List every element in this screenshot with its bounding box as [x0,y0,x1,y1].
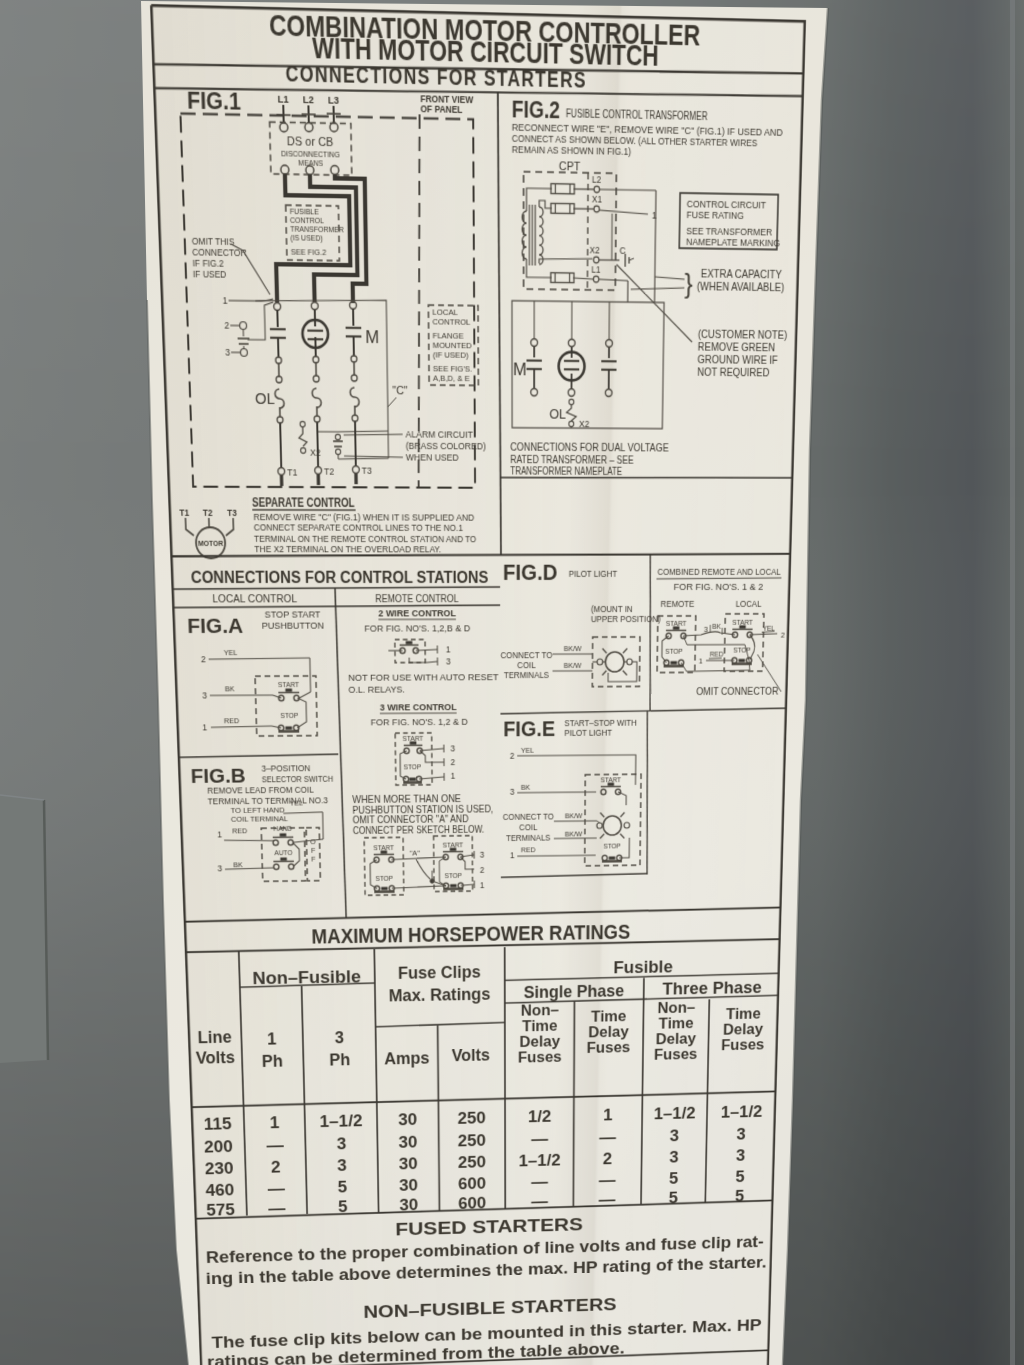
svg-text:F: F [311,855,315,863]
svg-text:T3: T3 [227,508,237,517]
svg-text:L2: L2 [592,175,601,185]
svg-text:Amps: Amps [384,1049,429,1068]
svg-text:WHEN USED: WHEN USED [406,453,459,464]
svg-text:LOCAL: LOCAL [432,307,458,317]
svg-text:L3: L3 [328,95,340,106]
svg-text:NAMEPLATE MARKING: NAMEPLATE MARKING [686,237,780,249]
svg-text:STOP: STOP [280,712,298,720]
svg-text:1: 1 [269,1113,279,1132]
svg-text:FIG.E: FIG.E [503,717,555,741]
svg-text:EXTRA CAPACITY: EXTRA CAPACITY [701,269,783,282]
svg-text:L1: L1 [277,94,289,106]
svg-text:FOR FIG. NO'S. 1,2,B & D: FOR FIG. NO'S. 1,2,B & D [364,624,470,634]
svg-text:Fuse Clips: Fuse Clips [398,963,481,983]
svg-text:(WHEN AVAILABLE): (WHEN AVAILABLE) [697,281,785,294]
svg-text:YEL: YEL [521,747,534,755]
svg-text:O: O [310,838,316,846]
svg-text:COIL: COIL [519,823,537,832]
svg-text:MOUNTED: MOUNTED [433,340,472,350]
svg-text:RED: RED [224,717,239,725]
svg-text:STOP: STOP [733,646,751,654]
svg-text:1–1/2: 1–1/2 [319,1111,362,1131]
svg-text:5: 5 [669,1170,679,1189]
svg-text:Ph: Ph [329,1051,350,1070]
svg-text:OL: OL [255,390,275,408]
svg-text:MOTOR: MOTOR [198,539,224,548]
svg-text:OF PANEL: OF PANEL [420,104,462,115]
svg-text:3: 3 [335,1029,345,1048]
svg-text:BK/W: BK/W [564,645,582,653]
svg-text:3–POSITION: 3–POSITION [261,764,310,774]
svg-text:Fuses: Fuses [654,1045,698,1063]
svg-text:L1: L1 [591,265,600,275]
svg-text:NOT REQUIRED: NOT REQUIRED [697,367,769,379]
svg-text:1–1/2: 1–1/2 [654,1104,696,1124]
svg-text:3: 3 [217,864,222,874]
svg-text:—: — [268,1180,286,1199]
svg-text:O.L. RELAYS.: O.L. RELAYS. [348,685,405,695]
svg-text:F: F [311,847,315,855]
svg-text:Single Phase: Single Phase [524,982,625,1002]
svg-text:THE X2 TERMINAL ON THE OVERLOA: THE X2 TERMINAL ON THE OVERLOAD RELAY. [254,545,441,556]
svg-text:2: 2 [450,758,455,768]
svg-text:BK/W: BK/W [565,812,583,820]
svg-text:RED: RED [710,650,724,658]
svg-text:M: M [365,326,379,347]
svg-text:COIL: COIL [517,661,535,670]
svg-text:—: — [531,1173,548,1192]
svg-text:PILOT LIGHT: PILOT LIGHT [564,728,612,737]
svg-text:IF USED: IF USED [193,269,227,279]
svg-text:250: 250 [457,1108,485,1128]
svg-text:30: 30 [398,1110,417,1129]
svg-text:2 WIRE CONTROL: 2 WIRE CONTROL [378,609,456,619]
svg-text:3: 3 [337,1156,347,1175]
svg-text:3: 3 [669,1148,679,1167]
svg-text:1: 1 [510,851,515,861]
svg-text:2: 2 [224,321,229,332]
svg-text:YEL: YEL [290,800,304,808]
svg-text:3: 3 [736,1124,746,1143]
svg-text:CONNECT TO: CONNECT TO [503,812,554,821]
svg-text:1: 1 [652,211,657,222]
svg-text:Fusible: Fusible [613,957,673,977]
svg-text:2: 2 [781,630,785,639]
svg-text:CONTROL: CONTROL [432,317,470,327]
svg-text:COIL TERMINAL: COIL TERMINAL [231,814,288,823]
svg-text:CONNECT SEPARATE CONTROL LINES: CONNECT SEPARATE CONTROL LINES TO THE NO… [254,523,463,534]
svg-text:RED: RED [521,846,536,854]
svg-text:1: 1 [603,1106,612,1125]
svg-text:UPPER POSITION): UPPER POSITION) [591,615,661,624]
svg-text:3: 3 [670,1126,680,1145]
svg-text:FIG.1: FIG.1 [187,87,242,116]
svg-text:1: 1 [451,772,456,782]
svg-text:30: 30 [398,1132,417,1151]
svg-text:LOCAL: LOCAL [736,600,762,609]
svg-text:3: 3 [510,788,515,798]
svg-text:X2: X2 [579,419,590,430]
svg-text:3: 3 [202,691,208,701]
svg-text:BK/W: BK/W [564,662,582,670]
svg-text:PILOT LIGHT: PILOT LIGHT [569,569,618,578]
svg-text:460: 460 [205,1181,234,1201]
svg-text:Line: Line [197,1028,232,1047]
svg-text:SEE FIG.2: SEE FIG.2 [291,248,327,257]
svg-text:Ph: Ph [262,1052,284,1071]
svg-text:REMOVE LEAD FROM COIL: REMOVE LEAD FROM COIL [207,786,314,797]
svg-text:250: 250 [458,1131,486,1151]
svg-text:—: — [599,1127,616,1146]
svg-text:"C": "C" [392,384,407,398]
svg-text:BK: BK [521,784,531,792]
svg-text:3 WIRE CONTROL: 3 WIRE CONTROL [380,703,457,713]
svg-text:(BRASS COLORED): (BRASS COLORED) [406,441,486,452]
svg-text:CONNECTIONS FOR CONTROL STATIO: CONNECTIONS FOR CONTROL STATIONS [191,567,489,587]
svg-text:SEE FIG'S.: SEE FIG'S. [433,364,472,374]
svg-text:X2: X2 [590,245,600,255]
svg-text:CPT: CPT [559,159,581,173]
svg-text:LOCAL CONTROL: LOCAL CONTROL [212,592,297,605]
svg-text:—: — [266,1135,284,1154]
svg-text:2: 2 [480,866,485,876]
svg-text:1: 1 [699,656,703,665]
svg-text:T1: T1 [179,508,189,518]
svg-text:2: 2 [510,752,515,762]
svg-text:3: 3 [446,657,451,667]
svg-text:T3: T3 [362,466,373,476]
svg-text:(CUSTOMER NOTE): (CUSTOMER NOTE) [698,329,787,341]
svg-text:X2: X2 [310,448,321,459]
svg-text:3: 3 [337,1134,347,1153]
svg-text:CONNECT TO: CONNECT TO [500,651,552,660]
svg-text:FUSE RATING: FUSE RATING [686,210,744,222]
svg-text:1: 1 [202,723,207,733]
svg-text:1–1/2: 1–1/2 [721,1102,763,1122]
svg-text:NOT FOR USE WITH AUTO RESET: NOT FOR USE WITH AUTO RESET [348,673,499,684]
svg-text:REMOTE CONTROL: REMOTE CONTROL [375,594,459,605]
svg-text:FOR FIG. NO'S. 1,2 & D: FOR FIG. NO'S. 1,2 & D [371,718,469,728]
svg-text:3: 3 [225,348,231,359]
svg-text:5: 5 [337,1178,347,1197]
svg-text:(IF USED): (IF USED) [433,350,469,360]
svg-text:CONNECTIONS FOR DUAL VOLTAGE: CONNECTIONS FOR DUAL VOLTAGE [510,442,669,454]
svg-text:2: 2 [603,1149,612,1168]
svg-text:M: M [513,359,527,379]
svg-text:REMOVE WIRE "C" (FIG.1) WHEN I: REMOVE WIRE "C" (FIG.1) WHEN IT IS SUPPL… [253,513,474,524]
svg-text:3: 3 [450,744,455,754]
svg-text:1: 1 [446,645,451,655]
svg-text:3: 3 [704,625,708,634]
svg-text:REMAIN AS SHOWN IN FIG.1): REMAIN AS SHOWN IN FIG.1) [512,145,631,158]
svg-text:1: 1 [480,881,485,891]
svg-text:REMOTE: REMOTE [661,600,695,609]
svg-text:(IS USED): (IS USED) [290,233,323,242]
svg-text:5: 5 [669,1189,678,1208]
svg-text:CONNECT PER SKETCH BELOW.: CONNECT PER SKETCH BELOW. [353,825,484,837]
svg-text:T2: T2 [203,508,213,518]
svg-text:STOP START: STOP START [265,610,322,620]
svg-text:L2: L2 [303,95,315,107]
svg-text:—: — [531,1129,548,1148]
svg-text:BK/W: BK/W [565,830,583,838]
svg-text:AUTO: AUTO [274,849,292,857]
svg-text:IF FIG.2: IF FIG.2 [192,258,223,268]
svg-text:5: 5 [735,1187,745,1206]
svg-text:X1: X1 [592,194,602,204]
svg-text:BK: BK [225,685,235,693]
svg-text:Fuses: Fuses [587,1038,631,1056]
svg-text:(MOUNT IN: (MOUNT IN [591,605,633,614]
svg-text:Volts: Volts [195,1049,235,1068]
svg-text:T1: T1 [287,468,297,479]
svg-text:200: 200 [204,1137,233,1157]
svg-text:3: 3 [480,851,485,861]
svg-text:FIG.B: FIG.B [190,764,246,788]
svg-text:"A": "A" [410,848,420,857]
svg-text:OL: OL [549,407,566,422]
svg-text:Max. Ratings: Max. Ratings [389,985,491,1005]
svg-text:BK: BK [712,622,721,630]
svg-text:1: 1 [217,830,222,840]
svg-text:FIG.2: FIG.2 [512,96,560,124]
svg-text:30: 30 [399,1176,418,1195]
svg-text:3: 3 [736,1146,746,1165]
svg-text:BK: BK [233,861,243,869]
svg-text:COMBINED REMOTE AND LOCAL: COMBINED REMOTE AND LOCAL [657,568,780,577]
svg-text:T2: T2 [324,467,334,478]
svg-text:}: } [684,269,693,300]
svg-text:250: 250 [458,1153,486,1172]
svg-text:RED: RED [232,827,247,835]
svg-text:TERMINALS: TERMINALS [506,834,550,843]
svg-text:30: 30 [399,1154,418,1173]
svg-text:FOR FIG. NO'S. 1 & 2: FOR FIG. NO'S. 1 & 2 [674,583,764,592]
svg-text:START: START [278,681,300,689]
svg-text:1/2: 1/2 [528,1107,551,1126]
svg-text:Volts: Volts [452,1046,490,1065]
svg-text:TERMINAL ON THE REMOTE CONTROL: TERMINAL ON THE REMOTE CONTROL STATION A… [254,534,477,545]
svg-text:HAND: HAND [273,825,292,833]
svg-text:STOP: STOP [603,842,620,850]
svg-text:230: 230 [204,1159,233,1179]
svg-text:Fuses: Fuses [721,1035,765,1053]
svg-text:FLANGE: FLANGE [433,331,464,341]
svg-text:START–STOP WITH: START–STOP WITH [564,719,636,728]
svg-text:OMIT THIS: OMIT THIS [192,236,235,247]
svg-text:1: 1 [267,1030,277,1049]
svg-text:TERMINALS: TERMINALS [504,671,549,680]
svg-text:GROUND WIRE IF: GROUND WIRE IF [697,355,778,367]
svg-text:600: 600 [458,1174,486,1193]
svg-text:5: 5 [735,1168,745,1187]
svg-text:FIG.A: FIG.A [187,613,244,637]
svg-text:CONNECTOR: CONNECTOR [192,247,247,258]
svg-text:SEPARATE CONTROL: SEPARATE CONTROL [252,495,355,510]
svg-text:STOP: STOP [665,647,683,655]
svg-text:PUSHBUTTON: PUSHBUTTON [262,621,325,631]
svg-text:2: 2 [271,1158,281,1177]
svg-text:DS or CB: DS or CB [287,134,334,149]
svg-text:REMOVE GREEN: REMOVE GREEN [698,342,776,354]
svg-text:1: 1 [222,296,227,307]
svg-text:YEL: YEL [224,649,238,657]
svg-text:Fuses: Fuses [518,1048,562,1066]
svg-text:115: 115 [203,1114,232,1134]
svg-text:OMIT CONNECTOR: OMIT CONNECTOR [696,687,778,698]
svg-text:A,B,D, & E: A,B,D, & E [433,373,470,383]
svg-text:STOP: STOP [375,875,393,883]
svg-text:ALARM CIRCUIT: ALARM CIRCUIT [405,430,472,441]
svg-text:—: — [599,1171,616,1190]
svg-text:2: 2 [201,655,206,665]
svg-text:STOP: STOP [445,872,462,880]
svg-text:FIG.D: FIG.D [503,560,558,585]
svg-text:TRANSFORMER NAMEPLATE: TRANSFORMER NAMEPLATE [510,466,622,478]
svg-text:1–1/2: 1–1/2 [519,1151,561,1171]
svg-text:SELECTOR SWITCH: SELECTOR SWITCH [262,775,334,785]
svg-text:STOP: STOP [404,763,422,771]
